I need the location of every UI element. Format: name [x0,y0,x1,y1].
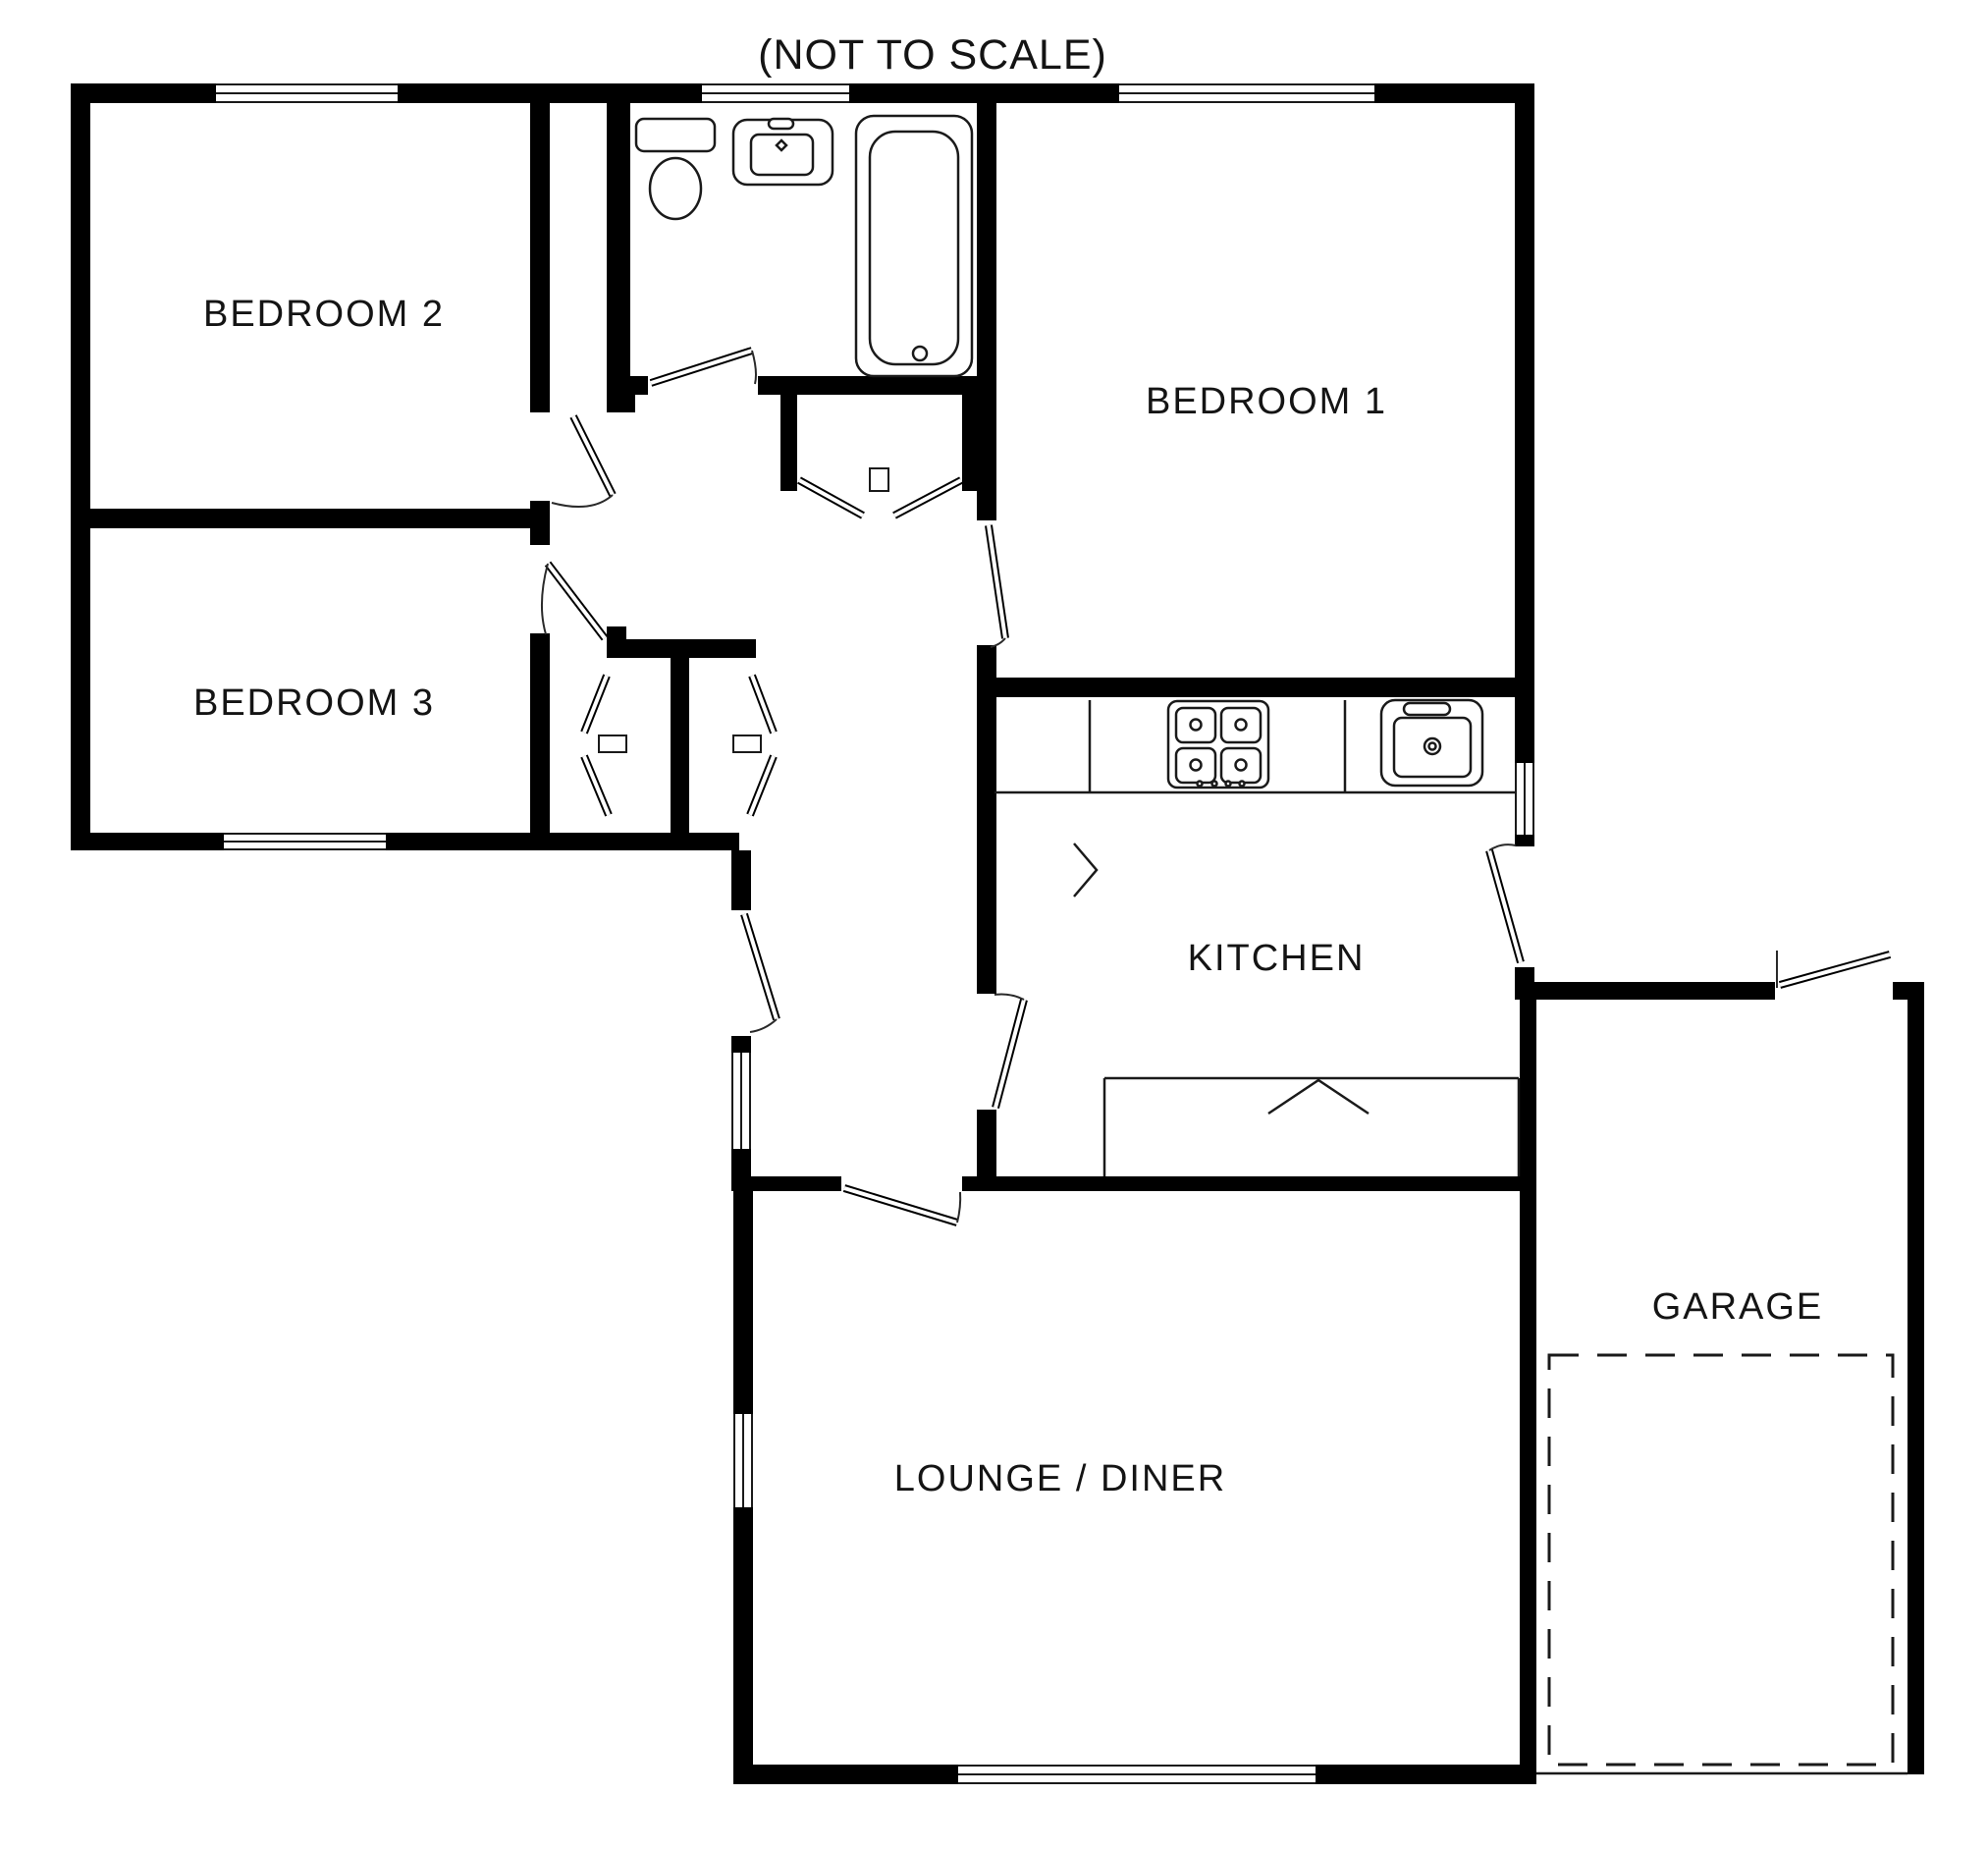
window-icon [1516,763,1533,835]
door-swing-back-door [1489,844,1521,962]
wall-segment [977,678,1534,697]
wall-segment [1515,103,1534,763]
wall-segment [962,1176,1536,1191]
wash-basin-icon [733,119,833,185]
wall-segment [977,1110,996,1191]
wall-segment [758,376,996,395]
wall-segment [751,1176,841,1191]
wall-segment [1520,1000,1536,1765]
door-swing-bedroom-2 [552,416,613,507]
wall-segment [530,633,550,850]
wall-segment [1515,967,1534,1000]
wall-segment [1374,83,1534,103]
room-label-lounge-diner: LOUNGE / DINER [894,1458,1226,1499]
wall-segment [398,83,702,103]
labels: (NOT TO SCALE) BEDROOM 2 BEDROOM 3 BEDRO… [193,31,1823,1499]
garage-features [1536,1355,1907,1773]
walls [71,83,1924,1784]
room-label-kitchen: KITCHEN [1188,938,1366,979]
window-icon [1119,84,1374,102]
door-swing-bathroom [651,351,756,384]
floor-plan: (NOT TO SCALE) BEDROOM 2 BEDROOM 3 BEDRO… [0,0,1988,1850]
door-bifold-cupboard-left [584,676,626,815]
hob-icon [1168,701,1268,788]
window-icon [216,84,398,102]
wall-segment [607,626,626,658]
door-bifold-cupboard-right [733,676,774,815]
room-label-garage: GARAGE [1652,1286,1824,1328]
wall-segment [849,83,1119,103]
door-handle-icon [733,735,761,752]
wall-segment [962,395,979,491]
wall-segment [71,833,224,850]
window-icon [702,84,849,102]
wall-segment [1316,1765,1536,1784]
wall-segment [733,1191,753,1414]
door-swing-garage-side [1777,951,1890,988]
window-icon [958,1766,1316,1783]
wall-segment [977,103,996,520]
worktop-lower [1104,1078,1519,1176]
toilet-icon [636,119,715,219]
wall-segment [977,645,996,697]
door-handle-icon [870,468,888,491]
wall-segment [71,83,90,850]
door-swing-bedroom-1 [989,525,1005,647]
garage-parking-bay-outline [1549,1355,1893,1765]
wall-segment [977,697,996,994]
counter-end-chevron-icon [1074,843,1097,897]
bathtub-icon [856,116,972,376]
room-label-bedroom-2: BEDROOM 2 [203,294,445,335]
door-swing-lounge [844,1188,960,1223]
door-swing-kitchen [994,995,1024,1108]
wall-segment [71,83,216,103]
wall-segment [733,1765,958,1784]
floor-plan-canvas: (NOT TO SCALE) BEDROOM 2 BEDROOM 3 BEDRO… [0,0,1988,1850]
wall-segment [1515,835,1534,846]
window-icon [732,1053,750,1149]
wall-segment [1907,982,1924,1774]
counter-chevron-icon [1268,1080,1369,1114]
wall-segment [671,658,689,850]
page-title: (NOT TO SCALE) [758,31,1107,79]
room-label-bedroom-1: BEDROOM 1 [1146,381,1387,422]
door-bifold-airing-cupboard [799,468,961,516]
bathroom-fixtures [636,116,972,376]
window-icon [224,834,386,849]
door-swing-bedroom-3 [542,564,605,638]
wall-segment [731,1149,751,1191]
wall-segment [1534,982,1775,1000]
door-handle-icon [599,735,626,752]
room-label-bedroom-3: BEDROOM 3 [193,682,435,724]
wall-segment [731,850,751,910]
wall-segment [530,103,550,412]
kitchen-sink-icon [1381,700,1482,786]
window-icon [734,1414,752,1507]
wall-segment [780,395,797,491]
wall-segment [733,1507,753,1784]
wall-segment [607,395,635,412]
wall-segment [530,501,550,545]
wall-segment [607,103,630,395]
wall-segment [71,509,550,528]
wall-segment [731,1036,751,1053]
door-swing-front-entrance [744,914,777,1032]
wall-segment [607,639,756,658]
